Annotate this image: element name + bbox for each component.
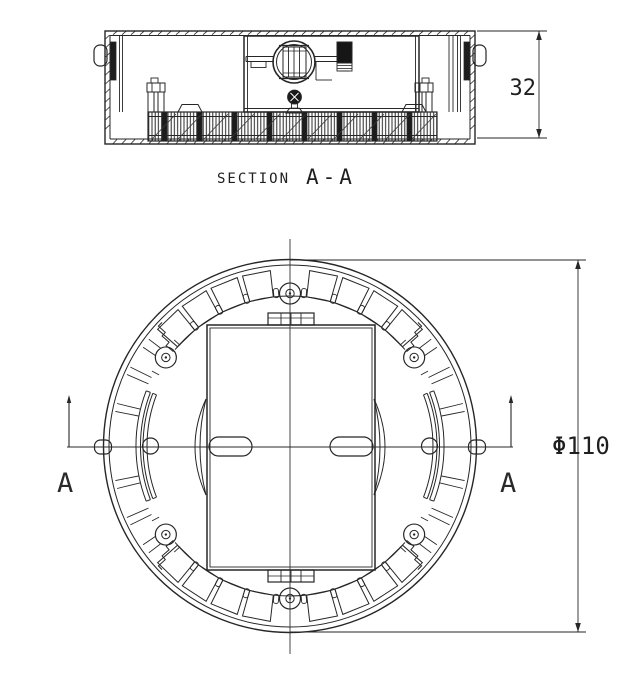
hatch-tick xyxy=(410,31,414,34)
hatch-tick xyxy=(105,107,109,111)
hatch-tick xyxy=(302,31,306,34)
hatch-tick xyxy=(185,31,189,34)
heatsink-post xyxy=(302,112,307,141)
compartment-box xyxy=(244,36,419,112)
section-arrow xyxy=(67,395,71,403)
fin-post xyxy=(190,561,200,571)
hatch-tick xyxy=(105,80,109,84)
hatch-tick xyxy=(401,31,405,34)
plan-view xyxy=(67,239,513,654)
hatch-tick xyxy=(266,31,270,34)
heatsink-post xyxy=(372,112,377,141)
gland-core xyxy=(283,47,306,77)
clip-band-cap xyxy=(153,393,157,395)
hatch-tick xyxy=(470,116,474,120)
mounting-post xyxy=(415,83,433,92)
hatch-tick xyxy=(113,31,117,34)
clip-band-cap xyxy=(430,500,434,502)
hatch-tick xyxy=(455,139,459,143)
rib-strut xyxy=(127,508,149,517)
clip-band-cap xyxy=(424,393,428,395)
hatch-tick xyxy=(176,31,180,34)
boss-bracket xyxy=(152,517,159,521)
screw-boss-center xyxy=(413,356,415,358)
hatch-tick xyxy=(419,31,423,34)
diameter-dimension: Φ110 xyxy=(290,260,610,632)
heatsink-post xyxy=(337,112,342,141)
hatch-tick xyxy=(383,31,387,34)
fin-post xyxy=(381,321,391,331)
hatch-tick xyxy=(455,31,459,34)
fin-post xyxy=(381,561,391,571)
terminal-block xyxy=(337,42,352,63)
hatch-tick xyxy=(105,89,109,93)
hatch-tick xyxy=(470,89,474,93)
boss-bracket xyxy=(421,517,428,521)
rib-strut xyxy=(117,404,140,410)
clip-band-arc xyxy=(147,395,156,497)
hatch-tick xyxy=(470,125,474,129)
mounting-post-leg xyxy=(148,92,154,112)
hatch-tick xyxy=(311,31,315,34)
hatch-tick xyxy=(392,31,396,34)
boss-bracket xyxy=(421,371,428,375)
section-arrow xyxy=(509,395,513,403)
hatch-tick xyxy=(365,31,369,34)
hatch-tick xyxy=(428,31,432,34)
hatch-tick xyxy=(167,31,171,34)
hatch-tick xyxy=(105,71,109,75)
clip-pivot xyxy=(422,438,438,454)
hatch-tick xyxy=(105,116,109,120)
hatch-tick xyxy=(248,31,252,34)
hatch-tick xyxy=(470,107,474,111)
clip-band-arc xyxy=(424,395,433,497)
rib-strut xyxy=(429,367,450,377)
hatch-tick xyxy=(437,31,441,34)
clip-band-cap xyxy=(146,500,150,502)
cad-drawing: 32 SECTION A-A Φ110 A A xyxy=(0,0,637,683)
hatch-tick xyxy=(140,139,144,143)
hatch-tick xyxy=(131,31,135,34)
hatch-tick xyxy=(464,139,468,143)
terminal-block-base xyxy=(337,63,352,71)
fin-post xyxy=(190,321,200,331)
clip-band-arc xyxy=(136,391,146,501)
rib-strut xyxy=(432,508,454,517)
rib-strut xyxy=(442,476,465,481)
hatch-tick xyxy=(149,31,153,34)
hatch-tick xyxy=(338,31,342,34)
hatch-tick xyxy=(113,139,117,143)
dimension-arrow xyxy=(575,623,581,632)
dimension-arrow xyxy=(536,31,542,40)
boss-strut xyxy=(425,537,437,545)
rib-strut xyxy=(440,483,463,489)
mounting-post-leg xyxy=(158,92,164,112)
rib-strut xyxy=(429,515,450,525)
rib-strut xyxy=(127,375,149,384)
clip-band-cap xyxy=(424,497,428,499)
boss-strut xyxy=(143,347,155,355)
cut-marker-left: A xyxy=(57,468,73,499)
hatch-tick xyxy=(347,31,351,34)
rib-strut xyxy=(130,515,151,525)
mounting-post-nub xyxy=(151,78,158,83)
hatch-tick xyxy=(446,31,450,34)
hatch-tick xyxy=(329,31,333,34)
section-label: SECTION A-A xyxy=(217,165,356,189)
rib-strut xyxy=(442,411,465,416)
hatch-tick xyxy=(221,31,225,34)
hatch-tick xyxy=(446,139,450,143)
hatch-tick xyxy=(194,31,198,34)
dimension-arrow xyxy=(575,260,581,269)
spring-clip-bar xyxy=(464,42,470,80)
screw-boss-center xyxy=(165,533,167,535)
hatch-tick xyxy=(105,35,109,39)
mounting-post-leg xyxy=(426,92,432,112)
hatch-tick xyxy=(105,98,109,102)
rib-strut xyxy=(130,367,151,377)
hatch-tick xyxy=(230,31,234,34)
section-label-prefix: SECTION xyxy=(217,171,290,187)
hatch-tick xyxy=(320,31,324,34)
section-height-dimension: 32 xyxy=(477,31,547,138)
clip-band-cap xyxy=(153,497,157,499)
fin-segment xyxy=(307,591,338,622)
fin-segment xyxy=(243,271,274,302)
hatch-tick xyxy=(131,139,135,143)
cut-marker-right: A xyxy=(500,468,516,499)
boss-strut xyxy=(420,339,432,348)
hatch-tick xyxy=(356,31,360,34)
rib-strut xyxy=(432,375,454,384)
rib-strut xyxy=(440,404,463,410)
boss-strut xyxy=(143,537,155,545)
boss-bracket xyxy=(152,371,159,375)
boss-strut xyxy=(149,544,161,553)
rib-strut xyxy=(115,411,138,416)
fin-segment xyxy=(307,271,338,302)
clip-band-cap xyxy=(146,391,150,393)
hatch-tick xyxy=(464,31,468,34)
heatsink-bump xyxy=(178,105,202,113)
hatch-tick xyxy=(105,125,109,129)
clip-pivot xyxy=(143,438,159,454)
hatch-tick xyxy=(284,31,288,34)
clip-band-arc xyxy=(434,391,444,501)
screw-stem xyxy=(292,104,298,109)
hatch-tick xyxy=(122,31,126,34)
fin-segment xyxy=(243,591,274,622)
hatch-tick xyxy=(257,31,261,34)
diameter-dimension-text: Φ110 xyxy=(552,432,610,460)
hatch-tick xyxy=(212,31,216,34)
screw-boss-center xyxy=(165,356,167,358)
rib-strut xyxy=(115,476,138,481)
rib-strut xyxy=(117,483,140,489)
hatch-tick xyxy=(470,80,474,84)
hatch-tick xyxy=(158,31,162,34)
hatch-tick xyxy=(239,31,243,34)
hatch-tick xyxy=(122,139,126,143)
section-label-ref: A-A xyxy=(306,165,356,189)
hatch-tick xyxy=(140,31,144,34)
screw-boss-center xyxy=(413,533,415,535)
hatch-tick xyxy=(470,35,474,39)
hatch-tick xyxy=(275,31,279,34)
hatch-tick xyxy=(374,31,378,34)
height-dimension-text: 32 xyxy=(510,76,537,101)
hatch-tick xyxy=(470,71,474,75)
hatch-tick xyxy=(293,31,297,34)
spring-clip-bar xyxy=(111,42,117,80)
hatch-tick xyxy=(470,98,474,102)
boss-strut xyxy=(149,339,161,348)
dimension-arrow xyxy=(536,129,542,138)
mounting-post xyxy=(147,83,165,92)
bracket-step xyxy=(251,62,266,68)
boss-strut xyxy=(420,544,432,553)
mounting-post-nub xyxy=(422,78,429,83)
hatch-tick xyxy=(203,31,207,34)
clip-band-cap xyxy=(430,391,434,393)
section-view xyxy=(94,31,486,144)
boss-strut xyxy=(425,347,437,355)
